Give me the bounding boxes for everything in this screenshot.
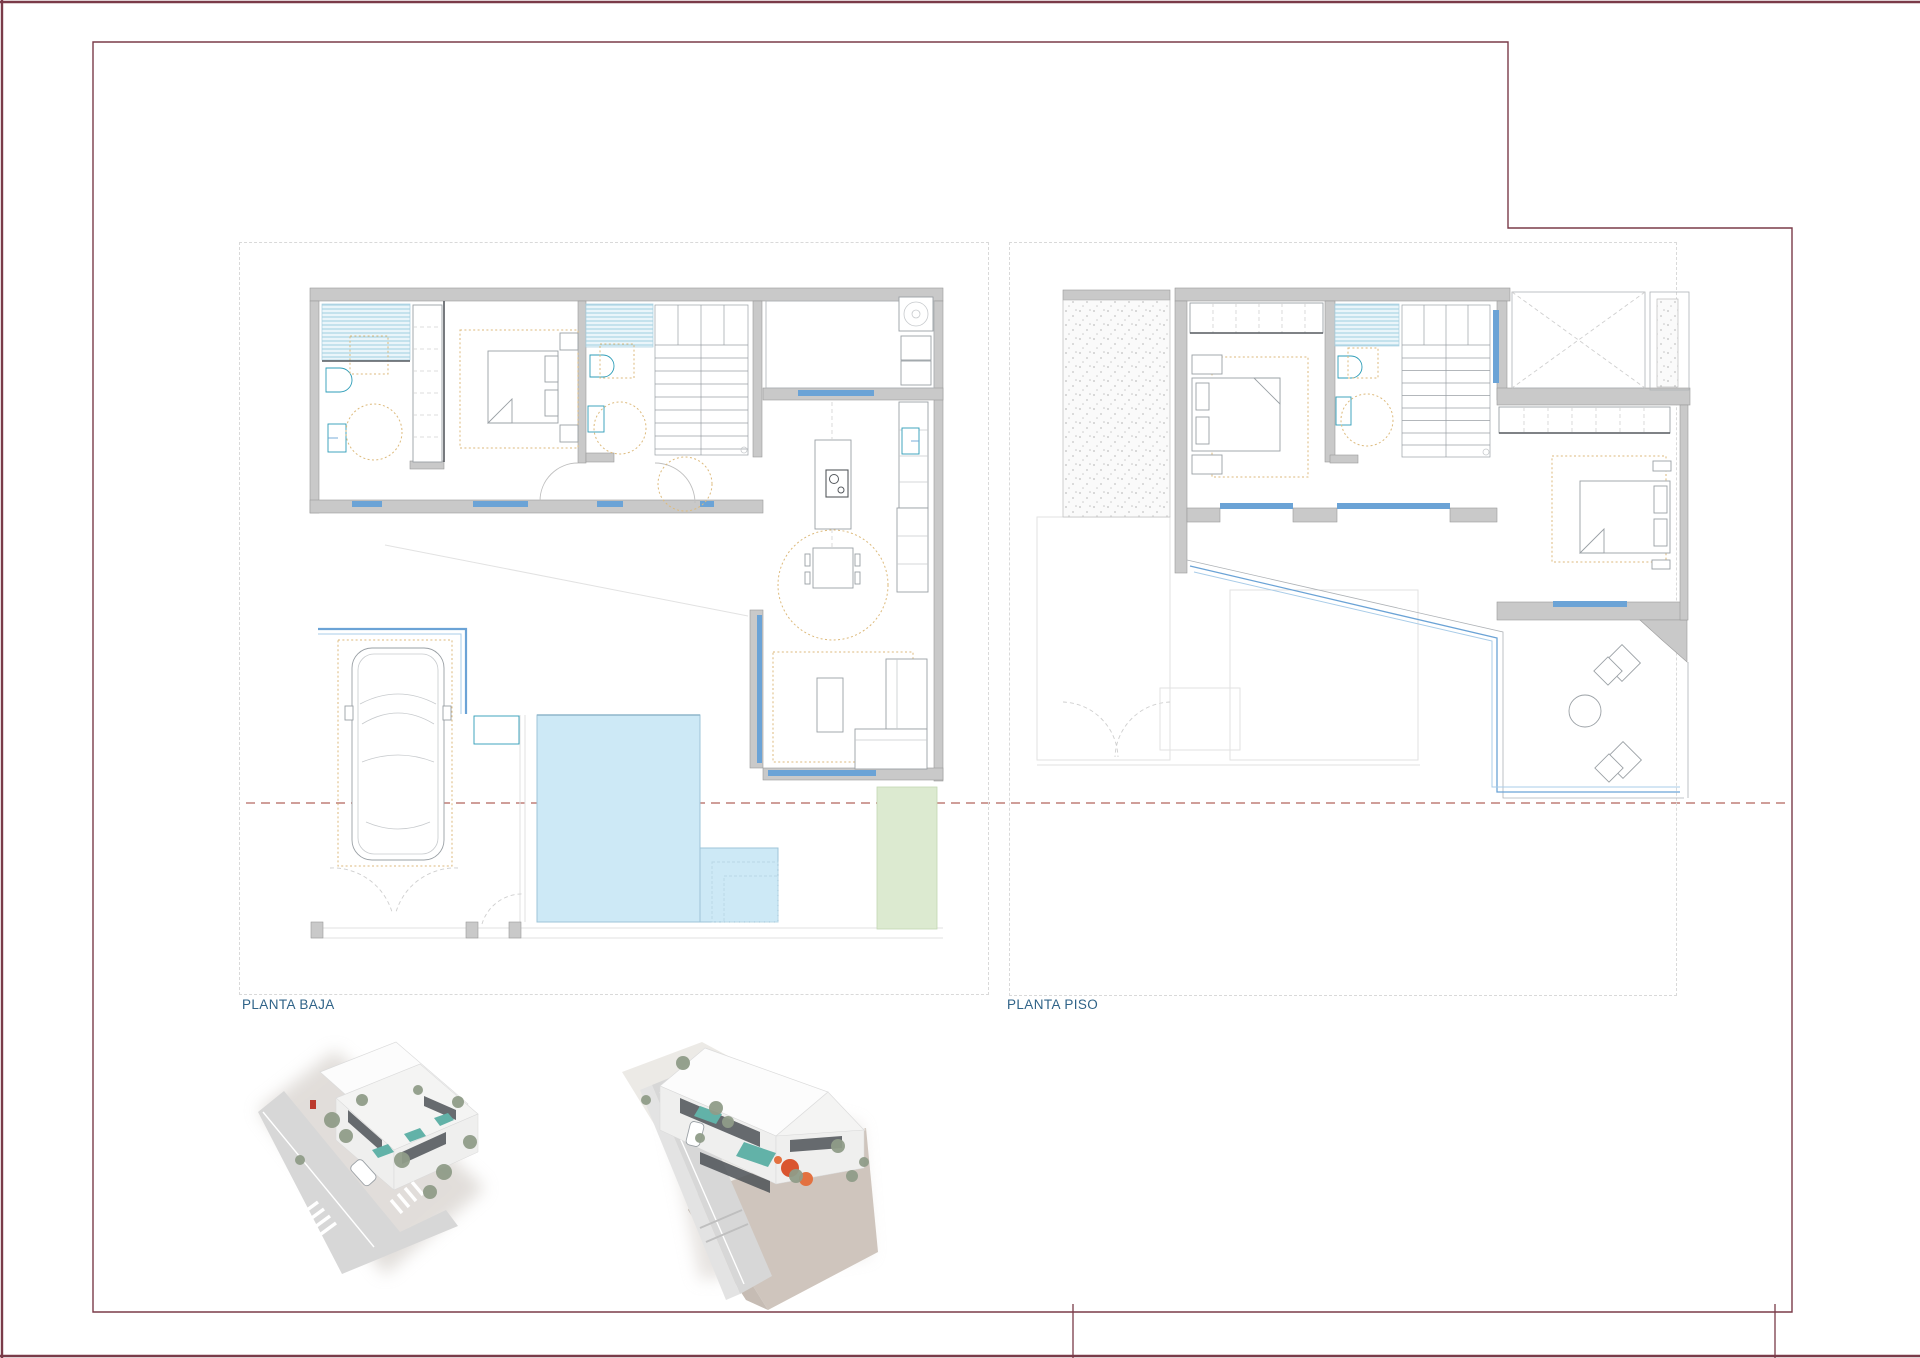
- wardrobe: [413, 305, 442, 462]
- floor-plan-planta-piso: [1000, 230, 1720, 1010]
- utility-room: [766, 297, 934, 388]
- terrace-top-left: [1063, 290, 1170, 517]
- counter: [899, 402, 928, 508]
- shower-1: [322, 304, 410, 360]
- parasol-orange: [774, 1156, 782, 1164]
- plan-label-planta-piso: PLANTA PISO: [1007, 997, 1098, 1012]
- floor-plan-planta-baja: [230, 230, 1000, 1000]
- nightstand: [1652, 560, 1670, 569]
- dining-table: [813, 548, 853, 588]
- void-terrace: [1512, 292, 1689, 390]
- red-accent: [310, 1100, 316, 1109]
- sofa: [855, 729, 927, 769]
- toilet-icon: [326, 368, 352, 392]
- nightstand: [560, 333, 578, 350]
- nightstand: [1653, 461, 1671, 471]
- garden-patch: [877, 787, 937, 929]
- lounge-chair-icon: [1595, 742, 1642, 783]
- side-table-icon: [1569, 695, 1601, 727]
- toilet-icon: [1338, 356, 1362, 378]
- roof-terrace: [1187, 560, 1688, 798]
- drawing-sheet: PLANTA BAJA PLANTA PISO: [0, 0, 1920, 1358]
- cooktop-icon: [826, 470, 848, 497]
- wardrobe: [1190, 303, 1323, 333]
- bedroom-1: [413, 301, 578, 462]
- render-aerial-view-1: [195, 1030, 515, 1300]
- bedroom-4: [1499, 407, 1671, 569]
- outdoor-shower: [474, 716, 519, 744]
- shower-3: [1335, 304, 1399, 346]
- coffee-table: [817, 678, 843, 732]
- plan-label-planta-baja: PLANTA BAJA: [242, 997, 335, 1012]
- lower-storey-ghost: [1037, 517, 1420, 765]
- bedroom-2: [1190, 303, 1323, 477]
- bathroom-1: [322, 304, 410, 460]
- tall-units: [897, 508, 928, 592]
- pool: [537, 715, 778, 922]
- nightstand: [1192, 355, 1222, 374]
- living-room: [773, 652, 927, 769]
- stairs: [1402, 305, 1490, 457]
- gate-swing: [396, 868, 458, 912]
- sofa: [886, 659, 927, 729]
- bathroom-2: [586, 304, 653, 454]
- render-aerial-view-2: [530, 1030, 880, 1358]
- windows: [1220, 310, 1627, 607]
- gate-swing: [330, 868, 392, 912]
- nightstand: [1192, 455, 1222, 474]
- bathroom-3: [1335, 304, 1399, 446]
- toilet-icon: [590, 355, 614, 377]
- dining-area: [778, 530, 888, 640]
- shower-2: [586, 304, 653, 347]
- nightstand: [560, 425, 578, 442]
- entry-swing: [482, 894, 524, 924]
- car-icon: [345, 648, 451, 860]
- lounge-chair-icon: [1594, 645, 1641, 686]
- stairs: [655, 305, 748, 455]
